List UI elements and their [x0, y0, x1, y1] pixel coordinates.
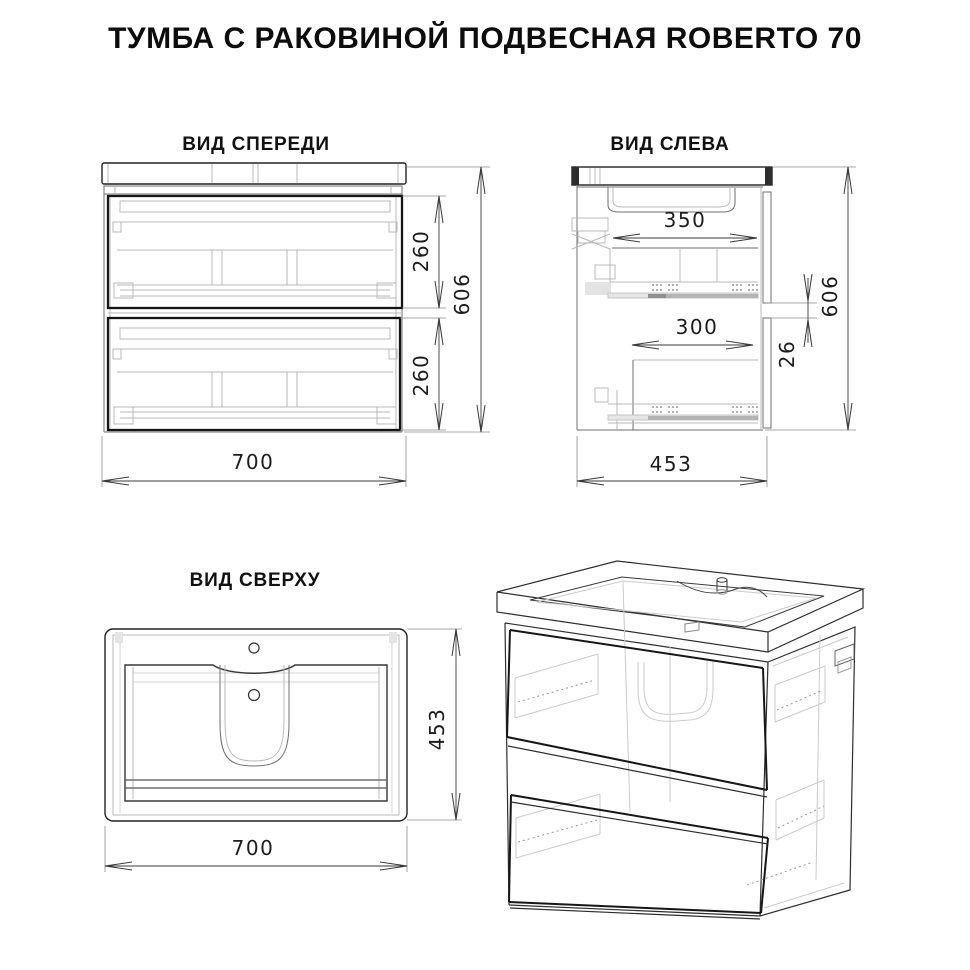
dim-front-top-drawer-height: 260 [409, 230, 433, 273]
drawing-sheet: ТУМБА С РАКОВИНОЙ ПОДВЕСНАЯ ROBERTO 70 В… [0, 0, 970, 970]
front-drawer-bottom [108, 318, 400, 430]
top-sink-basin [220, 643, 289, 766]
top-drawer-outline [125, 665, 387, 801]
page-title: ТУМБА С РАКОВИНОЙ ПОДВЕСНАЯ ROBERTO 70 [0, 22, 970, 56]
front-view-label: ВИД СПЕРЕДИ [182, 134, 330, 156]
front-dimensions [102, 167, 490, 487]
top-countertop [105, 629, 407, 821]
front-drawer-top [108, 196, 402, 308]
dim-front-bottom-drawer-height: 260 [409, 354, 433, 397]
top-view-drawing [80, 555, 480, 885]
dim-front-total-height: 606 [450, 273, 474, 316]
iso-cabinet-frame [505, 623, 855, 916]
dim-top-depth: 453 [425, 708, 449, 751]
isometric-view-drawing [480, 550, 880, 930]
left-view-label: ВИД СЛЕВА [610, 134, 729, 156]
left-countertop [572, 167, 772, 185]
left-drawer-bottom-box [595, 360, 758, 430]
faucet-hole [249, 643, 259, 653]
front-cabinet-body [104, 194, 402, 432]
dim-top-width: 700 [232, 836, 275, 860]
dim-left-depth: 453 [650, 452, 693, 476]
dim-left-top-drawer-depth: 350 [664, 208, 707, 232]
drain-hole [249, 690, 260, 701]
dim-left-mount-rail-gap: 26 [775, 340, 799, 368]
front-view-drawing [80, 155, 500, 500]
dim-left-total-height: 606 [818, 275, 842, 318]
iso-countertop [497, 561, 863, 652]
front-countertop [102, 163, 406, 194]
dim-left-bottom-drawer-depth: 300 [676, 315, 719, 339]
dim-front-width: 700 [232, 450, 275, 474]
